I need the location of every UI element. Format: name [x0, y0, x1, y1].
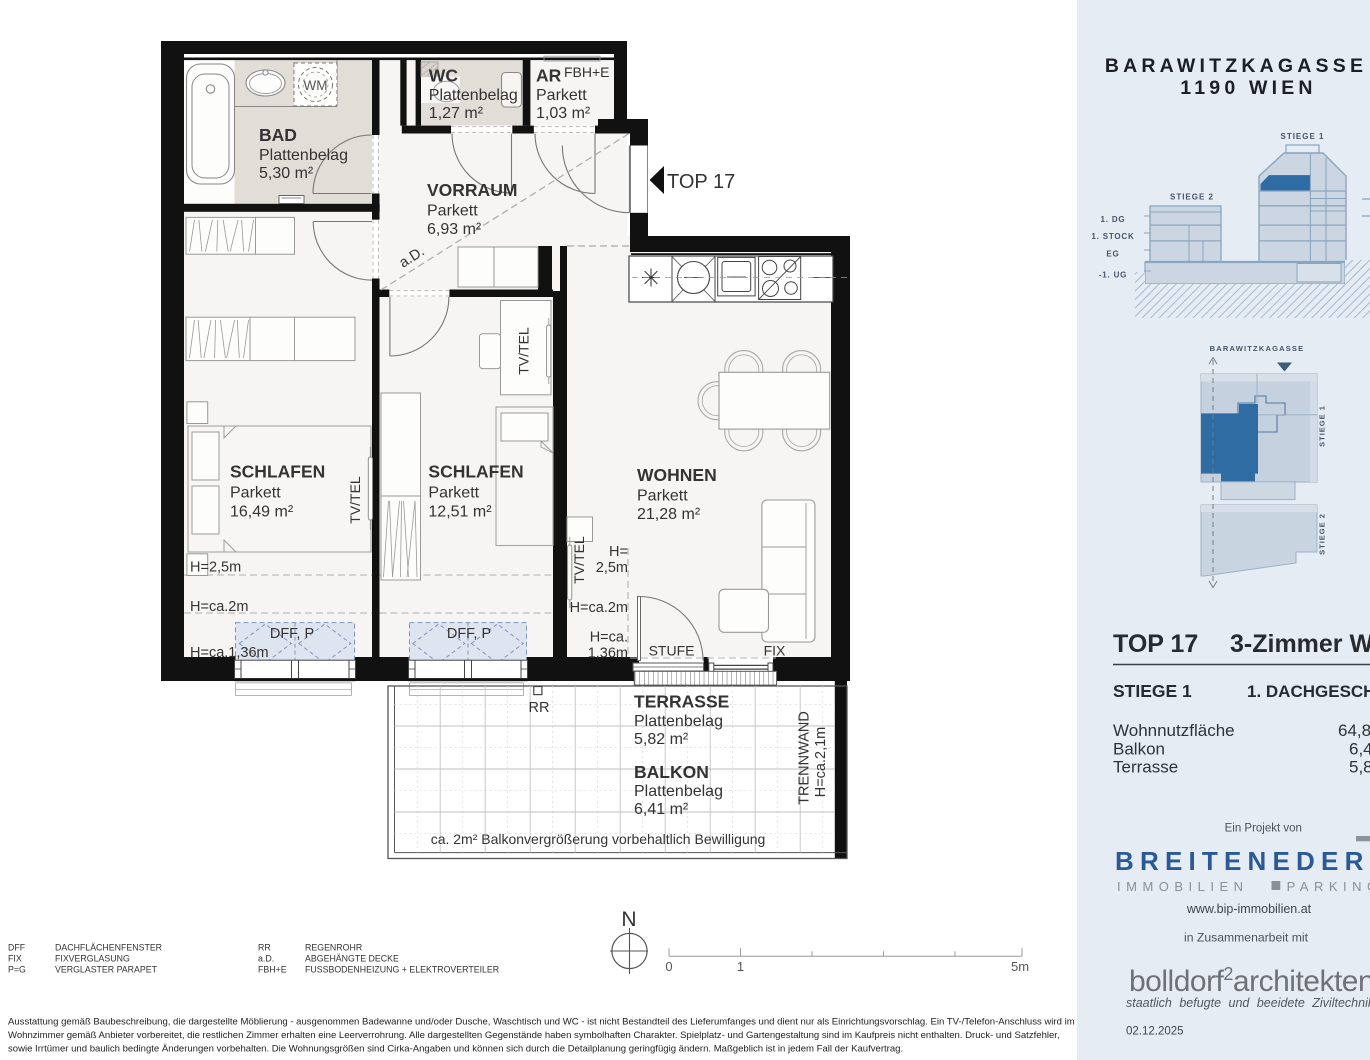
svg-text:H=ca.2m: H=ca.2m — [190, 599, 248, 615]
svg-text:REGENROHR: REGENROHR — [305, 943, 362, 953]
svg-text:EG: EG — [1106, 250, 1119, 259]
svg-text:STIEGE 1: STIEGE 1 — [1113, 681, 1192, 701]
svg-text:1. DG: 1. DG — [1101, 215, 1126, 224]
svg-text:VORRAUM: VORRAUM — [427, 180, 517, 200]
svg-text:BARAWITZKAGASSE: BARAWITZKAGASSE — [1105, 55, 1367, 77]
svg-text:IMMOBILIEN: IMMOBILIEN — [1117, 879, 1249, 894]
svg-text:1,03 m²: 1,03 m² — [536, 105, 591, 122]
svg-text:STIEGE 2: STIEGE 2 — [1318, 513, 1327, 555]
svg-text:H=ca.2,1m: H=ca.2,1m — [813, 727, 829, 798]
svg-text:BARAWITZKAGASSE: BARAWITZKAGASSE — [1210, 344, 1305, 353]
svg-text:64,81 m²: 64,81 m² — [1338, 721, 1370, 740]
svg-text:TOP 17: TOP 17 — [1113, 630, 1198, 658]
svg-text:5,82 m²: 5,82 m² — [634, 731, 689, 748]
svg-text:WC: WC — [429, 66, 459, 86]
svg-text:STIEGE 1: STIEGE 1 — [1318, 405, 1327, 447]
svg-text:FIX: FIX — [764, 643, 786, 659]
svg-text:3-Zimmer Wohnung: 3-Zimmer Wohnung — [1230, 630, 1370, 658]
svg-text:FIXVERGLASUNG: FIXVERGLASUNG — [55, 954, 130, 964]
svg-text:Parkett: Parkett — [536, 87, 587, 104]
svg-text:Plattenbelag: Plattenbelag — [634, 713, 723, 730]
svg-text:Parkett: Parkett — [637, 488, 688, 505]
svg-text:Plattenbelag: Plattenbelag — [429, 87, 518, 104]
svg-text:Parkett: Parkett — [428, 485, 479, 502]
svg-text:1. STOCK: 1. STOCK — [1091, 232, 1134, 241]
svg-text:16,49 m²: 16,49 m² — [230, 504, 294, 521]
svg-text:P=G: P=G — [8, 965, 26, 975]
svg-text:Parkett: Parkett — [230, 485, 281, 502]
svg-text:Balkon: Balkon — [1113, 740, 1165, 759]
svg-text:DFF: DFF — [8, 943, 26, 953]
svg-text:H=ca.2m: H=ca.2m — [570, 600, 628, 616]
svg-text:Terrasse: Terrasse — [1113, 758, 1178, 777]
svg-text:N: N — [621, 908, 636, 931]
svg-text:BAD: BAD — [259, 125, 297, 145]
svg-text:SCHLAFEN: SCHLAFEN — [428, 462, 523, 482]
svg-text:H=2,5m: H=2,5m — [190, 560, 241, 576]
svg-text:2,5m: 2,5m — [596, 560, 628, 576]
svg-text:1,27 m²: 1,27 m² — [429, 105, 484, 122]
svg-text:1,36m: 1,36m — [588, 646, 628, 662]
svg-text:12,51 m²: 12,51 m² — [428, 504, 492, 521]
svg-text:PARKING: PARKING — [1287, 879, 1370, 894]
svg-text:Wohnzimmer gemäß Anbieter vorb: Wohnzimmer gemäß Anbieter vorbereitet, d… — [8, 1030, 1060, 1041]
svg-text:TV/TEL: TV/TEL — [571, 536, 587, 584]
svg-text:6,93 m²: 6,93 m² — [427, 221, 482, 238]
svg-text:Plattenbelag: Plattenbelag — [259, 147, 348, 164]
svg-text:02.12.2025: 02.12.2025 — [1126, 1026, 1184, 1038]
svg-text:STUFE: STUFE — [649, 643, 695, 659]
svg-text:5m: 5m — [1011, 959, 1029, 974]
svg-text:1. DACHGESCHOSS: 1. DACHGESCHOSS — [1247, 682, 1370, 701]
svg-text:www.bip-immobilien.at: www.bip-immobilien.at — [1186, 902, 1312, 916]
svg-text:staatlich befugte und beeidete: staatlich befugte und beeidete Ziviltech… — [1126, 996, 1370, 1010]
svg-text:H=ca.: H=ca. — [590, 630, 628, 646]
svg-text:0: 0 — [665, 959, 672, 974]
svg-text:TRENNWAND: TRENNWAND — [797, 711, 813, 805]
svg-text:5,30 m²: 5,30 m² — [259, 165, 314, 182]
svg-text:-1. UG: -1. UG — [1099, 271, 1127, 280]
svg-text:sowie Irrtümer und baulich bed: sowie Irrtümer und baulich bedingte Ände… — [8, 1044, 903, 1055]
svg-text:Wohnnutzfläche: Wohnnutzfläche — [1113, 721, 1235, 740]
svg-text:BREITENEDER: BREITENEDER — [1115, 846, 1370, 876]
svg-text:ca. 2m² Balkonvergrößerung vor: ca. 2m² Balkonvergrößerung vorbehaltlich… — [431, 831, 766, 847]
svg-text:TOP 17: TOP 17 — [667, 171, 735, 193]
svg-text:ABGEHÄNGTE DECKE: ABGEHÄNGTE DECKE — [305, 954, 399, 964]
svg-text:6,41 m²: 6,41 m² — [1349, 740, 1370, 759]
svg-text:1190 WIEN: 1190 WIEN — [1180, 77, 1316, 99]
svg-text:RR: RR — [529, 700, 550, 716]
svg-text:FIX: FIX — [8, 954, 22, 964]
svg-text:a.D.: a.D. — [258, 954, 274, 964]
svg-text:TV/TEL: TV/TEL — [516, 327, 532, 375]
svg-text:STIEGE 1: STIEGE 1 — [1280, 132, 1324, 141]
svg-text:TERRASSE: TERRASSE — [634, 692, 729, 712]
svg-text:DACHFLÄCHENFENSTER: DACHFLÄCHENFENSTER — [55, 943, 162, 953]
svg-text:WOHNEN: WOHNEN — [637, 465, 717, 485]
svg-text:DFF, P: DFF, P — [447, 626, 491, 642]
svg-text:H=: H= — [609, 544, 628, 560]
svg-text:bolldorf2architekten: bolldorf2architekten — [1129, 964, 1370, 998]
svg-text:6,41 m²: 6,41 m² — [634, 801, 689, 818]
svg-text:H=ca.1,36m: H=ca.1,36m — [190, 645, 269, 661]
svg-text:STIEGE 2: STIEGE 2 — [1170, 193, 1214, 202]
svg-text:Ein Projekt von: Ein Projekt von — [1225, 823, 1302, 835]
svg-text:BALKON: BALKON — [634, 762, 709, 782]
svg-text:Parkett: Parkett — [427, 203, 478, 220]
svg-text:SCHLAFEN: SCHLAFEN — [230, 462, 325, 482]
svg-text:FUSSBODENHEIZUNG + ELEKTROVERT: FUSSBODENHEIZUNG + ELEKTROVERTEILER — [305, 965, 499, 975]
svg-text:RR: RR — [258, 943, 271, 953]
svg-text:FBH+E: FBH+E — [258, 965, 287, 975]
svg-text:DFF, P: DFF, P — [270, 626, 314, 642]
svg-text:5,82 m²: 5,82 m² — [1349, 758, 1370, 777]
svg-text:TV/TEL: TV/TEL — [347, 476, 363, 524]
svg-text:Ausstattung gemäß Baubeschreib: Ausstattung gemäß Baubeschreibung, die d… — [8, 1017, 1075, 1028]
svg-text:Plattenbelag: Plattenbelag — [634, 783, 723, 800]
svg-text:AR: AR — [536, 66, 562, 86]
svg-text:WM: WM — [304, 78, 328, 93]
svg-text:21,28 m²: 21,28 m² — [637, 506, 701, 523]
svg-text:in Zusammenarbeit mit: in Zusammenarbeit mit — [1184, 931, 1309, 945]
svg-text:1: 1 — [737, 959, 744, 974]
svg-text:VERGLASTER PARAPET: VERGLASTER PARAPET — [55, 965, 158, 975]
svg-text:FBH+E: FBH+E — [564, 64, 610, 80]
